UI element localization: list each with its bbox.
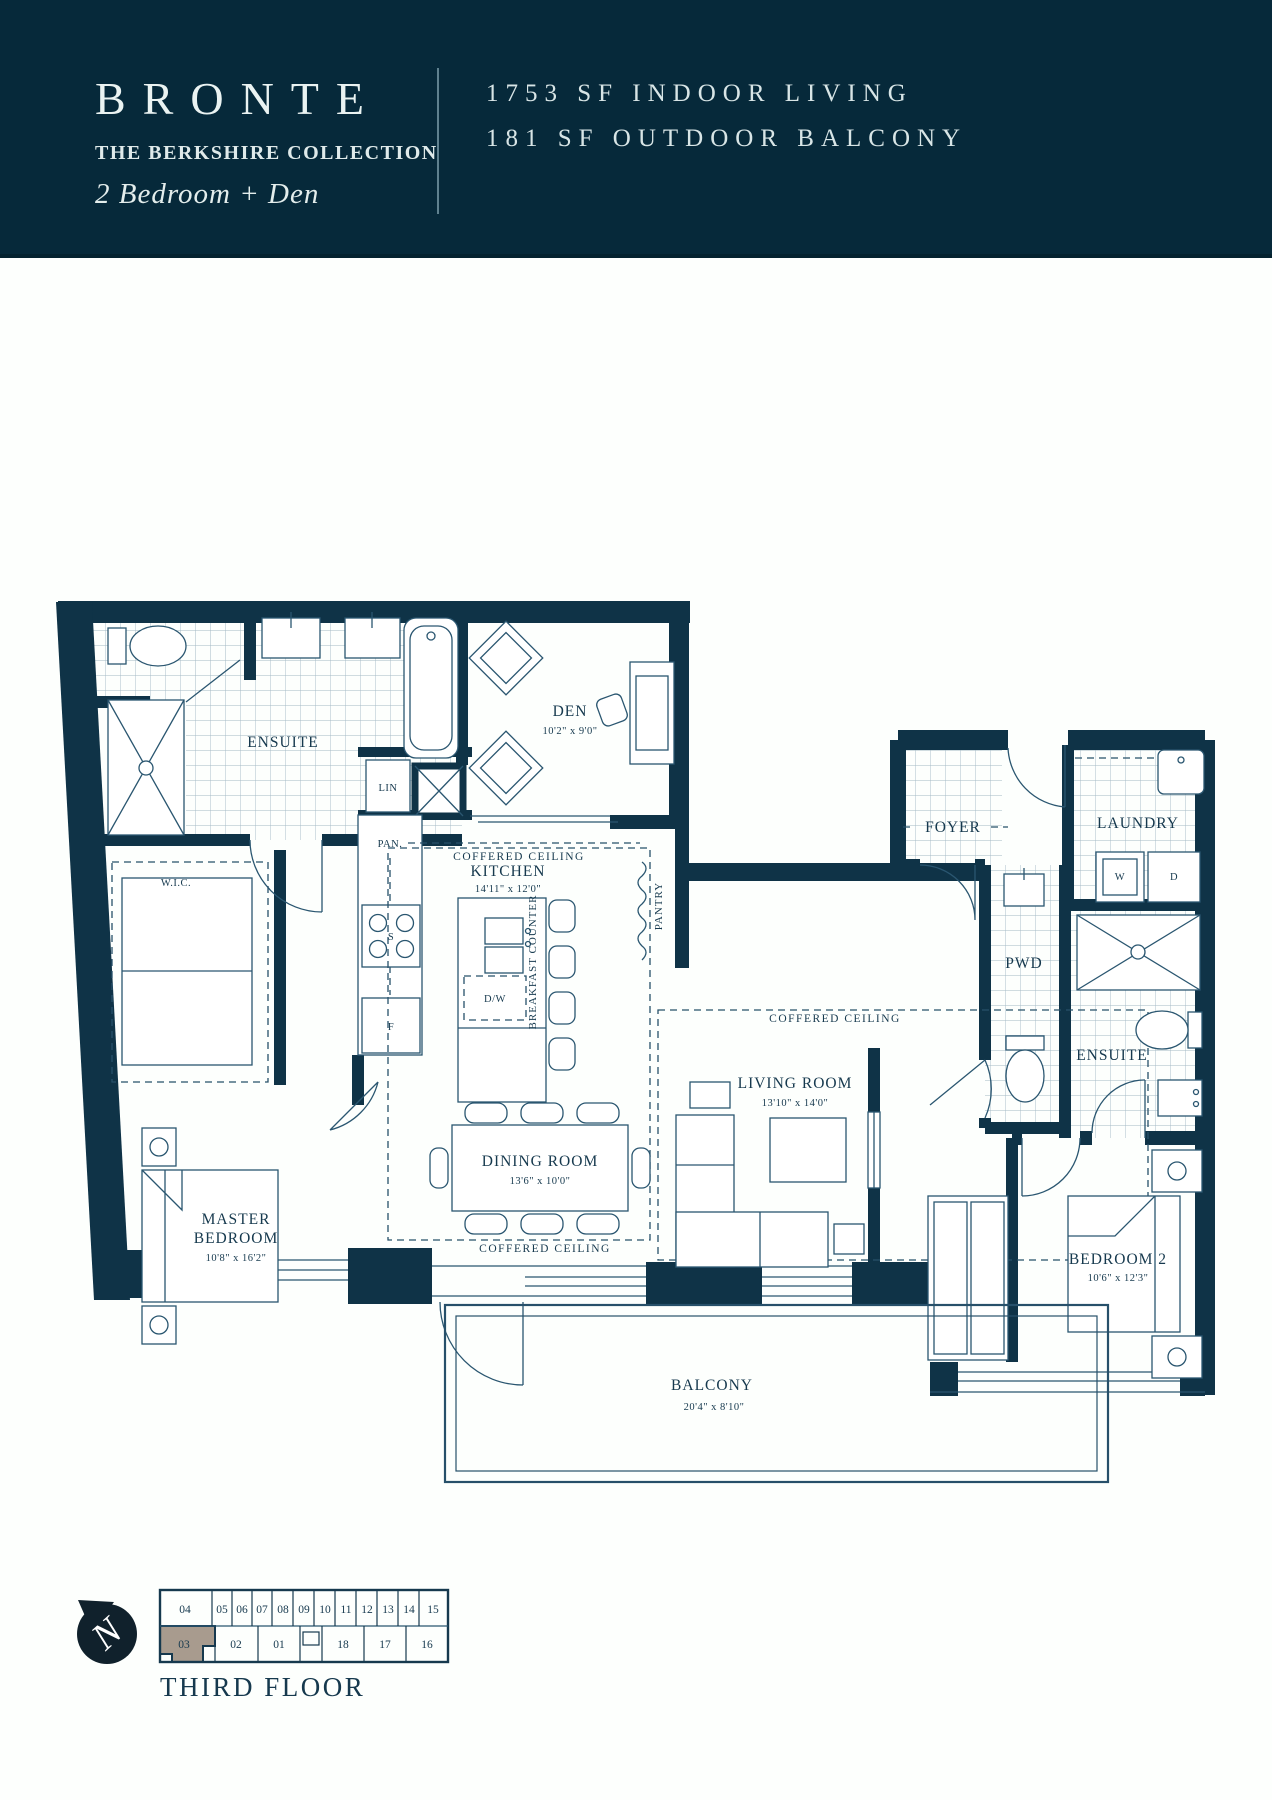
keyplan-unit: 13 xyxy=(382,1604,394,1616)
keyplan-unit: 10 xyxy=(319,1604,331,1616)
stove-label: S xyxy=(388,932,394,943)
dining-label: DINING ROOM xyxy=(482,1153,598,1170)
ensuite2-label: ENSUITE xyxy=(1076,1047,1148,1064)
dining-dims: 13'6" x 10'0" xyxy=(510,1176,571,1187)
keyplan-unit: 17 xyxy=(379,1639,391,1651)
foyer-label: FOYER xyxy=(925,819,981,836)
keyplan-unit: 16 xyxy=(421,1639,433,1651)
pan-label: PAN. xyxy=(378,839,403,850)
den-dims: 10'2" x 9'0" xyxy=(542,726,597,737)
master-label-1: MASTER xyxy=(202,1211,271,1228)
balcony-dims: 20'4" x 8'10" xyxy=(684,1402,745,1413)
bedroom2-dims: 10'6" x 12'3" xyxy=(1088,1273,1149,1284)
coffered-label-1: COFFERED CEILING xyxy=(453,851,585,863)
floor-label: THIRD FLOOR xyxy=(160,1672,365,1702)
washer-label: W xyxy=(1115,872,1125,883)
dryer-label: D xyxy=(1170,872,1178,883)
living-label: LIVING ROOM xyxy=(738,1075,853,1092)
balcony-label: BALCONY xyxy=(671,1377,753,1394)
keyplan-unit: 04 xyxy=(179,1604,191,1616)
floorplan-drawing: LIN xyxy=(0,0,1272,1800)
coffered-label-3: COFFERED CEILING xyxy=(769,1013,901,1025)
den-label: DEN xyxy=(553,703,588,720)
breakfast-counter-label: BREAKFAST COUNTER xyxy=(527,895,539,1030)
keyplan-unit: 02 xyxy=(230,1639,242,1651)
keyplan-unit: 05 xyxy=(216,1604,228,1616)
living-dims: 13'10" x 14'0" xyxy=(762,1098,829,1109)
keyplan-unit: 08 xyxy=(277,1604,289,1616)
wic-closet xyxy=(112,862,268,1082)
north-arrow: N xyxy=(77,1600,137,1664)
keyplan-unit: 09 xyxy=(298,1604,310,1616)
dishwasher-label: D/W xyxy=(484,994,506,1005)
laundry-label: LAUNDRY xyxy=(1097,815,1179,832)
master-dims: 10'8" x 16'2" xyxy=(206,1253,267,1264)
kitchen-label: KITCHEN xyxy=(470,863,545,880)
keyplan-unit: 07 xyxy=(256,1604,268,1616)
linen-label: LIN xyxy=(379,783,398,794)
pwd-label: PWD xyxy=(1005,955,1042,972)
keyplan-unit: 01 xyxy=(273,1639,285,1651)
keyplan-unit: 15 xyxy=(427,1604,439,1616)
keyplan-unit: 18 xyxy=(337,1639,349,1651)
keyplan-unit: 14 xyxy=(403,1604,415,1616)
master-label-2: BEDROOM xyxy=(194,1230,279,1247)
bedroom2-label: BEDROOM 2 xyxy=(1069,1251,1167,1268)
coffered-label-2: COFFERED CEILING xyxy=(479,1243,611,1255)
ensuite-main-label: ENSUITE xyxy=(247,734,319,751)
floorplan-sheet: BRONTE THE BERKSHIRE COLLECTION 2 Bedroo… xyxy=(0,0,1272,1800)
living-furniture xyxy=(676,1082,880,1267)
pantry-label: PANTRY xyxy=(653,882,665,930)
keyplan-unit: 06 xyxy=(236,1604,248,1616)
wic-label: W.I.C. xyxy=(161,878,191,889)
kitchen-dims: 14'11" x 12'0" xyxy=(475,884,541,895)
keyplan-unit: 12 xyxy=(361,1604,373,1616)
keyplan-unit-highlighted: 03 xyxy=(178,1639,190,1651)
fridge-label: F xyxy=(388,1022,394,1033)
keyplan-building: 04 05 06 07 08 09 10 11 12 13 14 15 03 0… xyxy=(160,1590,448,1662)
keyplan-unit: 11 xyxy=(340,1604,351,1616)
